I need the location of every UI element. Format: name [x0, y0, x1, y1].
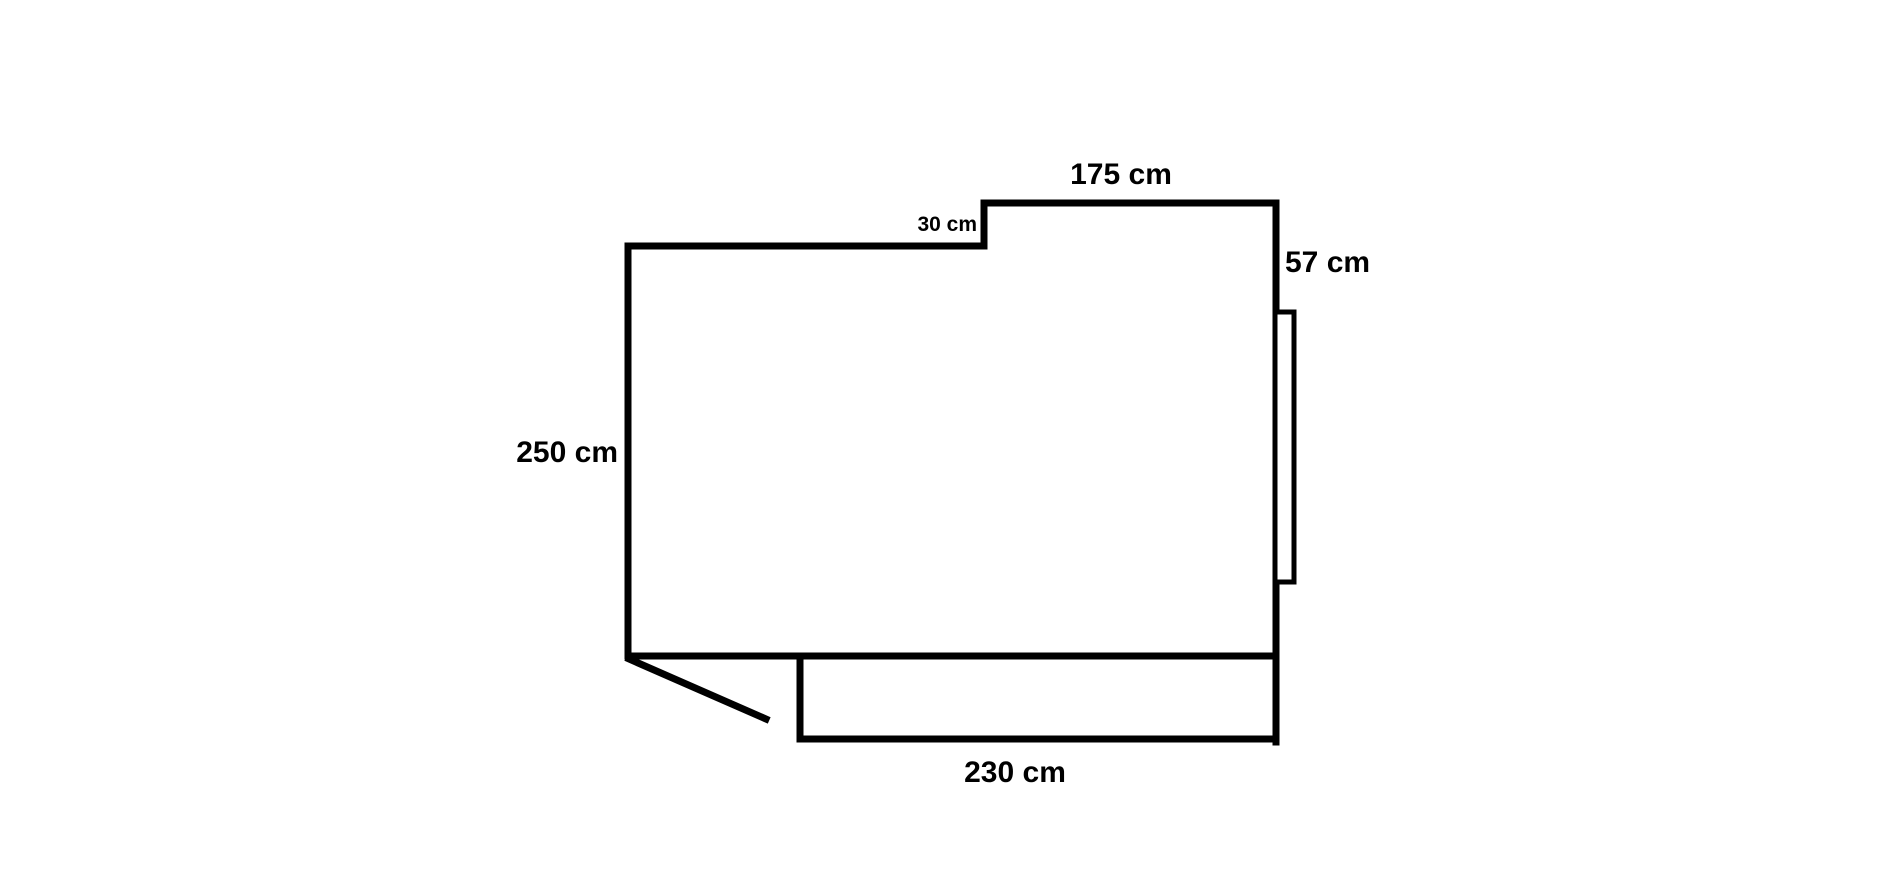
- window-radiator: [1275, 312, 1294, 582]
- door-swing-line: [629, 659, 766, 719]
- dimension-label-top-width: 175 cm: [1070, 158, 1172, 191]
- dimension-label-left-height: 250 cm: [516, 436, 618, 469]
- floor-plan-diagram: 175 cm 30 cm 57 cm 250 cm 230 cm: [0, 0, 1902, 876]
- dimension-label-bottom-width: 230 cm: [964, 756, 1066, 789]
- room-outline: [628, 203, 1276, 742]
- dimension-label-right-upper: 57 cm: [1285, 246, 1370, 279]
- dimension-label-step-depth: 30 cm: [917, 213, 977, 236]
- floor-plan-canvas: 175 cm 30 cm 57 cm 250 cm 230 cm: [0, 0, 1902, 876]
- bottom-annex-outline: [800, 656, 1276, 739]
